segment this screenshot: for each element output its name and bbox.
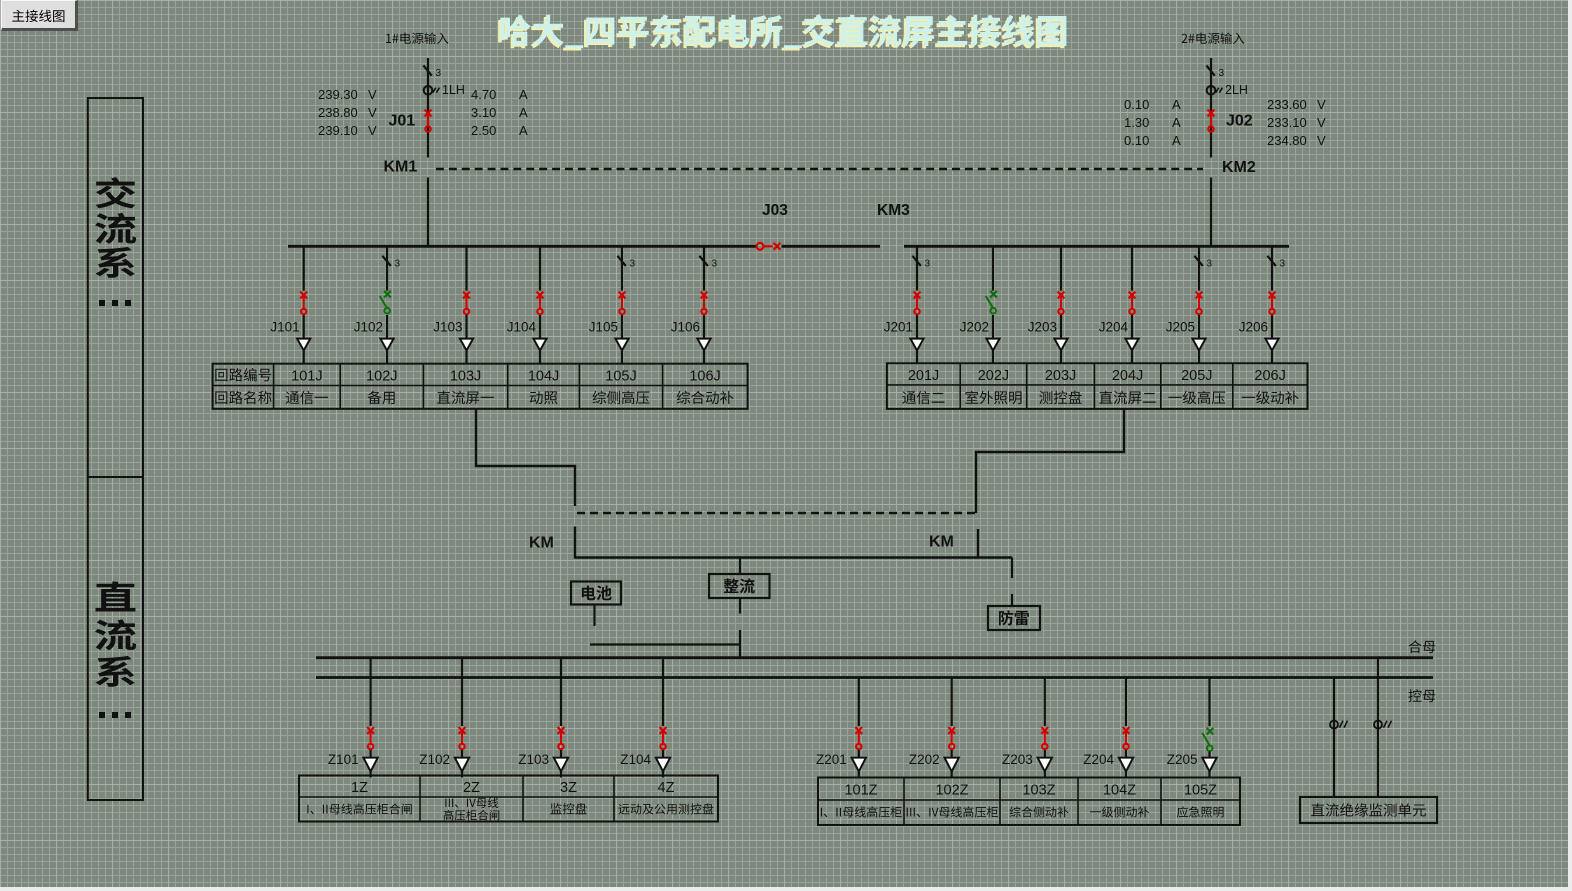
svg-text:Z205: Z205 [1167, 752, 1198, 767]
svg-text:J102: J102 [354, 320, 383, 335]
svg-text:103J: 103J [450, 368, 481, 384]
svg-text:V: V [368, 123, 377, 138]
svg-text:103Z: 103Z [1022, 783, 1055, 799]
svg-text:J205: J205 [1166, 320, 1195, 335]
svg-text:104Z: 104Z [1103, 783, 1136, 799]
svg-text:233.10: 233.10 [1267, 115, 1307, 130]
svg-text:3: 3 [712, 258, 718, 269]
svg-text:Z204: Z204 [1083, 752, 1114, 767]
svg-text:205J: 205J [1181, 368, 1212, 384]
svg-text:2.50: 2.50 [471, 123, 496, 138]
svg-text:J206: J206 [1239, 320, 1268, 335]
svg-text:J01: J01 [389, 113, 416, 130]
svg-text:V: V [1317, 115, 1326, 130]
svg-text:3.10: 3.10 [471, 105, 496, 120]
svg-text:102J: 102J [366, 368, 397, 384]
svg-text:238.80: 238.80 [318, 105, 358, 120]
svg-text:105J: 105J [605, 368, 636, 384]
svg-text:A: A [1172, 115, 1181, 130]
svg-text:J103: J103 [433, 320, 462, 335]
svg-text:KM1: KM1 [384, 159, 418, 176]
svg-text:206J: 206J [1254, 368, 1285, 384]
svg-text:203J: 203J [1045, 368, 1076, 384]
svg-text:J104: J104 [507, 320, 537, 335]
svg-text:3: 3 [1207, 258, 1213, 269]
svg-text:J105: J105 [589, 320, 618, 335]
svg-text:3Z: 3Z [560, 780, 577, 796]
svg-text:A: A [519, 87, 528, 102]
svg-text:J203: J203 [1028, 320, 1057, 335]
svg-text:A: A [1172, 97, 1181, 112]
svg-text:104J: 104J [528, 368, 559, 384]
svg-text:1Z: 1Z [351, 780, 368, 796]
svg-text:1.30: 1.30 [1124, 115, 1149, 130]
svg-text:0.10: 0.10 [1124, 133, 1149, 148]
svg-text:4.70: 4.70 [471, 87, 496, 102]
svg-text:2LH: 2LH [1225, 83, 1248, 97]
svg-text:V: V [368, 87, 377, 102]
svg-text:KM: KM [929, 534, 954, 551]
svg-text:204J: 204J [1112, 368, 1143, 384]
svg-text:2Z: 2Z [463, 780, 480, 796]
svg-text:J106: J106 [671, 320, 700, 335]
svg-text:1LH: 1LH [442, 83, 465, 97]
svg-text:202J: 202J [978, 368, 1009, 384]
svg-text:A: A [519, 105, 528, 120]
svg-text:3: 3 [1219, 68, 1225, 79]
svg-text:0.10: 0.10 [1124, 97, 1149, 112]
svg-text:233.60: 233.60 [1267, 97, 1307, 112]
svg-text:J204: J204 [1099, 320, 1129, 335]
svg-text:239.10: 239.10 [318, 123, 358, 138]
svg-text:J202: J202 [960, 320, 989, 335]
svg-text:201J: 201J [908, 368, 939, 384]
svg-text:Z202: Z202 [909, 752, 940, 767]
svg-text:3: 3 [395, 258, 401, 269]
svg-text:J201: J201 [884, 320, 913, 335]
svg-text:J02: J02 [1226, 113, 1253, 130]
svg-text:Z101: Z101 [328, 752, 359, 767]
svg-text:3: 3 [630, 258, 636, 269]
svg-text:V: V [1317, 133, 1326, 148]
svg-text:KM2: KM2 [1222, 159, 1256, 176]
svg-text:KM3: KM3 [877, 202, 910, 219]
svg-text:102Z: 102Z [935, 783, 968, 799]
svg-text:3: 3 [436, 68, 442, 79]
svg-text:234.80: 234.80 [1267, 133, 1307, 148]
svg-text:101Z: 101Z [844, 783, 877, 799]
svg-text:Z104: Z104 [620, 752, 651, 767]
svg-text:V: V [1317, 97, 1326, 112]
svg-text:J101: J101 [270, 320, 299, 335]
svg-text:Z201: Z201 [816, 752, 847, 767]
svg-text:Z203: Z203 [1002, 752, 1033, 767]
svg-text:4Z: 4Z [658, 780, 675, 796]
svg-text:101J: 101J [291, 368, 322, 384]
svg-text:Z103: Z103 [518, 752, 549, 767]
svg-text:3: 3 [925, 258, 931, 269]
svg-text:A: A [1172, 133, 1181, 148]
svg-text:V: V [368, 105, 377, 120]
svg-text:KM: KM [529, 535, 554, 552]
svg-text:Z102: Z102 [419, 752, 450, 767]
svg-text:A: A [519, 123, 528, 138]
svg-text:106J: 106J [689, 368, 720, 384]
svg-text:J03: J03 [762, 202, 788, 219]
svg-text:239.30: 239.30 [318, 87, 358, 102]
svg-text:3: 3 [1280, 258, 1286, 269]
svg-text:105Z: 105Z [1184, 783, 1217, 799]
